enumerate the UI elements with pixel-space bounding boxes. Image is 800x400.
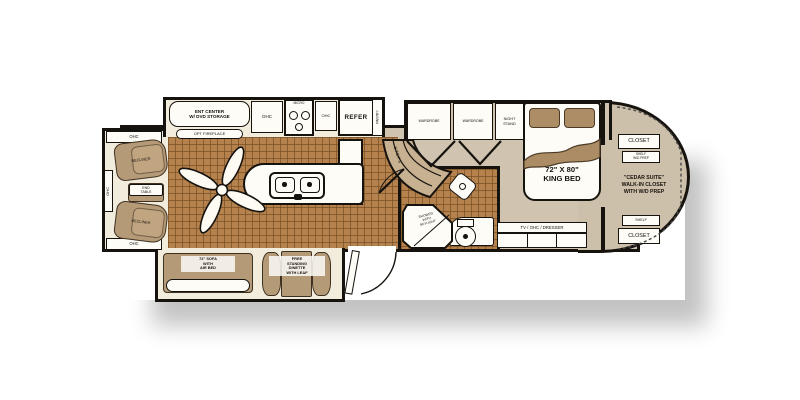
- end-table: END TABLE: [128, 183, 164, 202]
- closet-top: CLOSET: [618, 134, 660, 149]
- sink-drain-icon: [282, 182, 287, 187]
- walk-in-closet-label: "CEDAR SUITE" WALK-IN CLOSET WITH W/D PR…: [602, 175, 686, 195]
- pantry-label: PANTRY: [376, 111, 380, 124]
- entertainment-center: ENT CENTER W/ DVD STORAGE: [169, 101, 250, 127]
- dresser-divider: [556, 234, 557, 247]
- shelf-bottom: SHELF: [622, 215, 660, 226]
- rear-ohc-bottom-label: OHC: [129, 242, 138, 247]
- bed-pillow-right: [564, 108, 595, 128]
- dinette-label: FREE STANDING DINETTE WITH LEAF: [269, 256, 325, 276]
- rear-ohc-side-label: OHC: [106, 187, 111, 196]
- closet-bottom: CLOSET: [618, 228, 660, 244]
- closet-wall-lower: [601, 207, 605, 251]
- toilet: [455, 226, 476, 247]
- wardrobe-1: WARDROBE: [407, 103, 451, 140]
- wardrobe-1-label: WARDROBE: [418, 119, 439, 123]
- night-stand: NIGHT STAND: [495, 103, 524, 140]
- night-stand-label: NIGHT STAND: [503, 117, 516, 126]
- recliner-1-label: RECLINER: [114, 139, 168, 181]
- tv-dresser-cabinet: [497, 233, 587, 248]
- range-micro: MICRO: [284, 99, 314, 136]
- kitchen-ohc-left-label: OHC: [262, 114, 272, 119]
- bed-pillow-left: [529, 108, 560, 128]
- shelf-wd-prep: SHELF W/D PREP: [622, 151, 660, 163]
- kitchen-ohc-right-label: OHC: [322, 114, 331, 119]
- recliner-1: RECLINER: [113, 138, 169, 182]
- closet-top-label: CLOSET: [628, 138, 650, 144]
- opt-fireplace-label: OPT FIREPLACE: [194, 132, 226, 137]
- double-sink: [269, 172, 325, 199]
- faucet-icon: [294, 194, 302, 200]
- sofa-seat: [166, 279, 250, 292]
- sink-drain-icon: [307, 182, 312, 187]
- wardrobe-2: WARDROBE: [453, 103, 493, 140]
- rear-ohc-side: OHC: [104, 170, 113, 212]
- closet-wall-upper: [601, 101, 605, 145]
- shelf-bottom-label: SHELF: [635, 218, 647, 222]
- bath-sink-bowl-icon: [458, 182, 468, 192]
- opt-fireplace: OPT FIREPLACE: [176, 129, 243, 139]
- wardrobe-2-label: WARDROBE: [462, 119, 483, 123]
- counter-junction: [341, 166, 360, 202]
- recliner-2-label: RECLINER: [114, 201, 168, 243]
- kitchen-ohc-right: OHC: [315, 101, 337, 131]
- burner-icon: [301, 111, 310, 120]
- pantry: PANTRY: [372, 99, 383, 136]
- king-bed-label: 72" X 80" KING BED: [523, 166, 601, 184]
- recliner-2: RECLINER: [113, 200, 169, 244]
- entertainment-center-label: ENT CENTER W/ DVD STORAGE: [189, 109, 230, 120]
- rear-ohc-top-label: OHC: [129, 135, 138, 140]
- refrigerator: REFER: [338, 99, 374, 136]
- sofa-label: 72" SOFA WITH AIR BED: [181, 256, 235, 272]
- kitchen-ohc-left: OHC: [251, 101, 283, 133]
- rv-floorplan: ENT CENTER W/ DVD STORAGE OPT FIREPLACE …: [0, 0, 800, 400]
- tv-dresser-label: TV / OHC / DRESSER: [521, 225, 564, 230]
- micro-label: MICRO: [294, 102, 305, 106]
- end-table-label: END TABLE: [129, 184, 163, 196]
- dresser-divider: [527, 234, 528, 247]
- toilet-drain-icon: [463, 234, 468, 239]
- refer-label: REFER: [345, 114, 368, 121]
- shelf-wd-prep-label: SHELF W/D PREP: [633, 153, 649, 161]
- burner-icon: [289, 111, 298, 120]
- closet-bottom-label: CLOSET: [628, 233, 650, 239]
- burner-icon: [295, 123, 303, 131]
- tv-dresser-label-box: TV / OHC / DRESSER: [497, 222, 587, 233]
